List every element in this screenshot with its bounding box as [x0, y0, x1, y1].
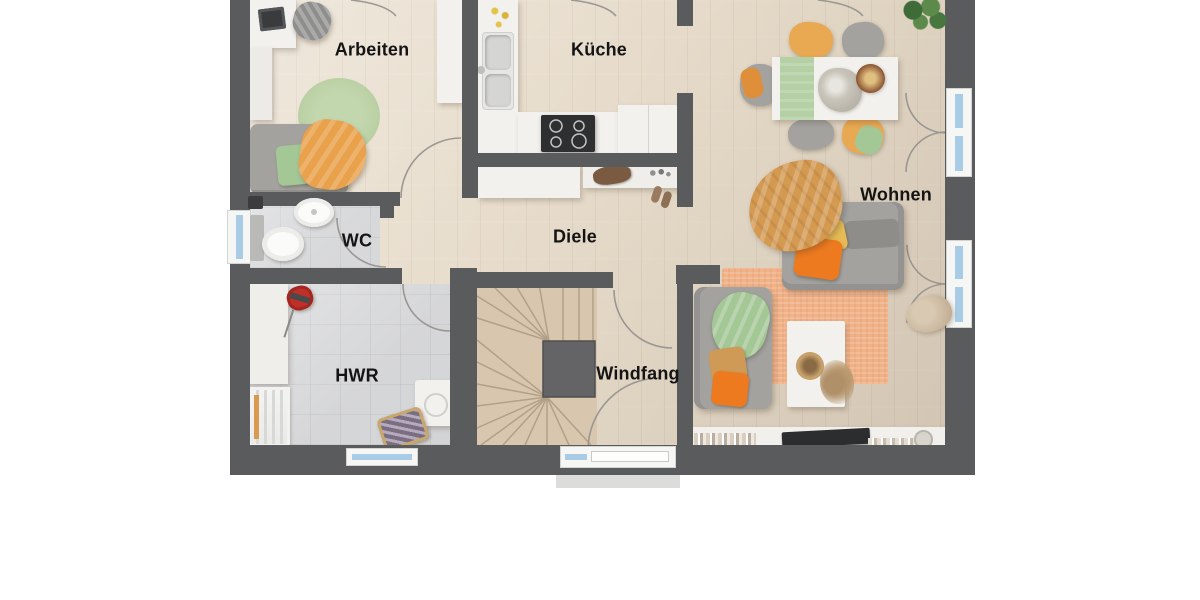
- fridge-cabinet-block: [618, 105, 680, 153]
- drying-rack: [248, 387, 290, 447]
- french-door-1: [946, 88, 972, 177]
- wc-window: [227, 210, 251, 264]
- counter-decor-flowers: [487, 2, 513, 32]
- kitchen-sink: [482, 32, 514, 110]
- hwr-window-glass: [352, 454, 412, 460]
- wall-stairs-left: [450, 268, 477, 445]
- wc-trash-bin: [248, 196, 263, 209]
- cooktop: [541, 115, 595, 152]
- front-door-step: [556, 475, 680, 488]
- floorplan-canvas: Arbeiten Küche Wohnen WC Diele HWR Windf…: [0, 0, 1200, 600]
- front-door-leaf: [592, 452, 668, 461]
- french-door-2-glass-upper: [955, 246, 963, 279]
- french-door-2-glass-lower: [955, 287, 963, 322]
- room-label-windfang: Windfang: [596, 364, 679, 385]
- wc-sink-drain: [311, 209, 317, 215]
- sofa2-pillow-orange: [710, 370, 749, 408]
- wardrobe: [437, 0, 462, 103]
- laptop: [258, 6, 286, 31]
- sofa-back-cushion: [844, 219, 899, 250]
- wall-kueche-bottom: [462, 153, 680, 167]
- diele-sideboard: [478, 163, 580, 198]
- front-door: [560, 446, 676, 468]
- dried-plant: [820, 360, 854, 404]
- wall-windfang-right: [677, 265, 693, 445]
- sink-basin-upper: [485, 35, 511, 70]
- vacuum-dark-band: [290, 292, 311, 304]
- room-label-wc: WC: [342, 231, 372, 252]
- french-door-1-glass-lower: [955, 136, 963, 171]
- wc-toilet: [262, 227, 304, 261]
- outer-wall-right: [945, 0, 975, 475]
- room-label-wohnen: Wohnen: [860, 185, 932, 206]
- keys: [648, 167, 672, 179]
- room-label-diele: Diele: [553, 227, 597, 248]
- room-label-hwr: HWR: [335, 366, 379, 387]
- wall-arbeiten-right: [462, 0, 478, 198]
- drying-clothes: [254, 395, 259, 439]
- room-label-kueche: Küche: [571, 40, 627, 61]
- table-bowl: [856, 64, 885, 93]
- wall-windfang-top: [477, 272, 613, 288]
- sink-basin-lower: [485, 74, 511, 107]
- sink-faucet: [477, 66, 485, 74]
- wc-window-glass: [236, 215, 243, 259]
- palm-plant: [898, 0, 948, 34]
- wall-wc-right: [380, 192, 394, 218]
- washing-machine-door: [424, 393, 448, 417]
- wall-wc-hwr-divider: [230, 268, 402, 284]
- shoe-right: [660, 190, 673, 209]
- hwr-counter: [248, 284, 288, 384]
- desk-side-cabinet: [250, 48, 272, 120]
- french-door-1-glass-upper: [955, 94, 963, 128]
- table-runner-green: [780, 57, 814, 120]
- wc-toilet-cistern: [250, 215, 264, 261]
- wall-kueche-right-top: [677, 0, 693, 26]
- hwr-window: [346, 448, 418, 466]
- wc-sink: [294, 198, 334, 227]
- wall-kueche-right-mid: [677, 93, 693, 207]
- front-door-sidelight-glass: [565, 454, 587, 460]
- room-label-arbeiten: Arbeiten: [335, 40, 410, 61]
